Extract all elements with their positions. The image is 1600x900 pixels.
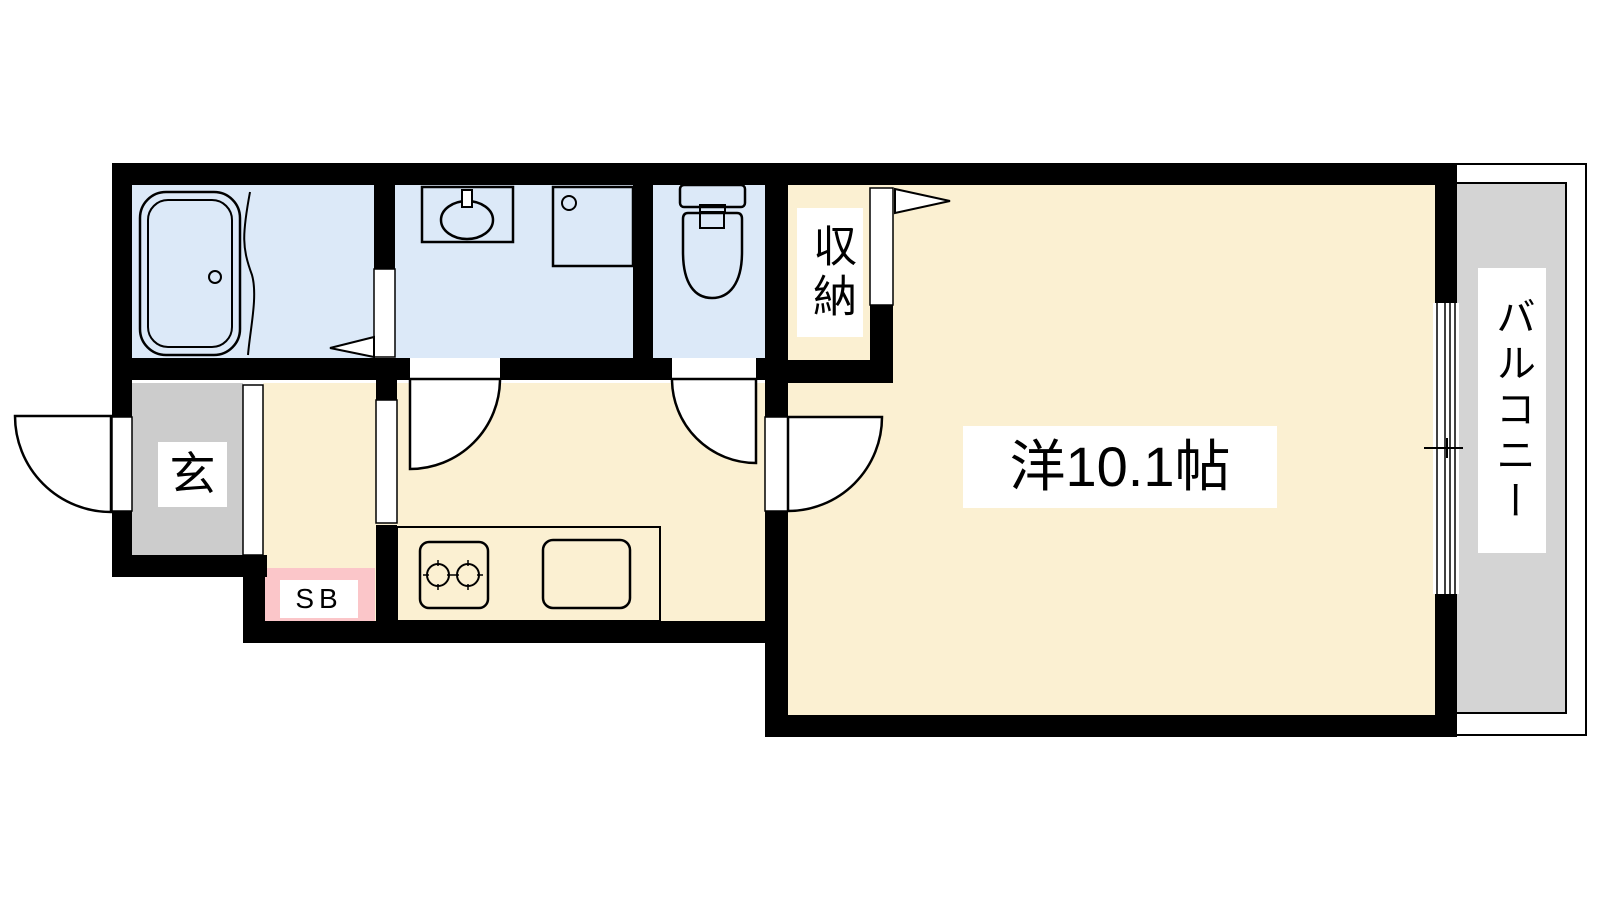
wall-segment [376,525,397,643]
wall-segment [1435,185,1457,305]
floor-plan-drawing [0,0,1600,900]
wall-segment [870,305,893,383]
wall-segment [374,185,395,269]
floor-plan: 玄 SB 収納 洋10.1帖 バルコニー [0,0,1600,900]
wall-segment [112,358,410,380]
wall-segment [500,358,672,380]
wall-segment [112,555,267,577]
wall-segment [765,185,788,360]
bathroom-sliding-door [374,269,395,357]
closet-door-panel [870,188,893,305]
entrance-label: 玄 [158,442,227,507]
wall-segment [1435,592,1457,737]
wall-segment [765,715,1457,737]
bathroom-floor [132,185,374,358]
wall-segment [243,621,788,643]
wall-segment [112,163,1457,185]
hall-kitchen-opening [376,400,397,523]
shoebox-label: SB [280,580,358,618]
balcony-label: バルコニー [1478,268,1546,553]
wall-segment [633,185,653,358]
main-room-door-jamb [765,417,788,511]
toilet-floor [653,185,765,358]
entrance-door-jamb [112,417,132,511]
entrance-door-swing [15,416,111,512]
wall-segment [112,185,132,417]
wall-segment [765,511,788,737]
wall-segment [376,380,397,400]
main-room-label: 洋10.1帖 [963,426,1277,508]
closet-label: 収納 [797,208,863,337]
entrance-hall-opening [243,385,263,555]
